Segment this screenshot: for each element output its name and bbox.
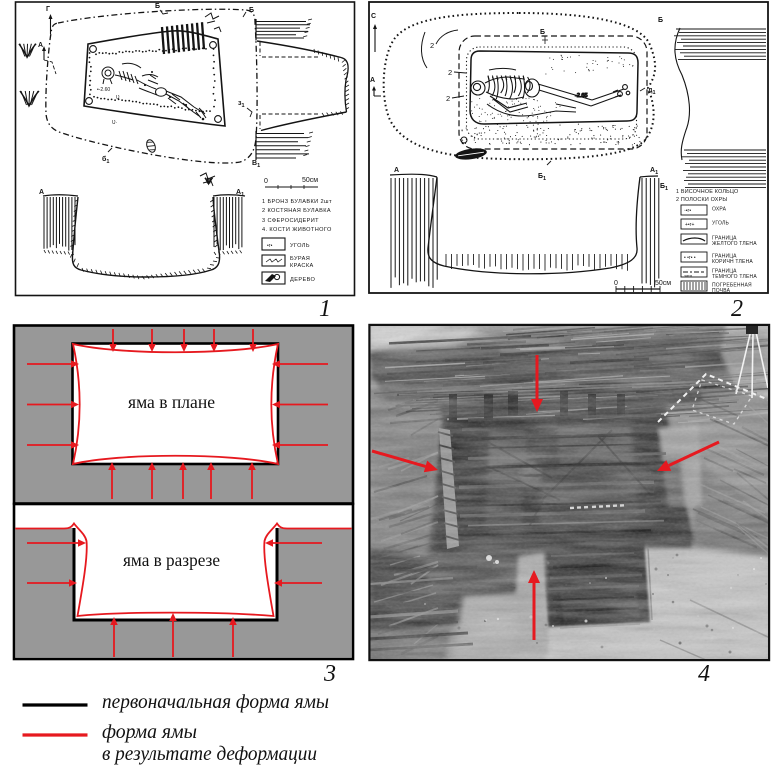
svg-text:КОРИЧН ТЛЕНА: КОРИЧН ТЛЕНА bbox=[712, 259, 753, 265]
svg-text:2: 2 bbox=[731, 296, 743, 322]
svg-text:0: 0 bbox=[614, 280, 618, 287]
svg-text:•-2.60: •-2.60 bbox=[97, 87, 110, 93]
svg-text:A: A bbox=[394, 167, 399, 174]
svg-text:•г•: •г• bbox=[267, 243, 273, 249]
svg-text:3: 3 bbox=[323, 661, 336, 687]
svg-text:КРАСКА: КРАСКА bbox=[290, 263, 314, 269]
svg-text:4. КОСТИ ЖИВОТНОГО: 4. КОСТИ ЖИВОТНОГО bbox=[262, 227, 332, 233]
svg-text:Ʋ·: Ʋ· bbox=[112, 120, 118, 126]
svg-text:1 БРОНЗ БУЛАВКИ 2шт: 1 БРОНЗ БУЛАВКИ 2шт bbox=[262, 199, 332, 205]
svg-text:яма в разрезе: яма в разрезе bbox=[123, 550, 220, 570]
svg-text:Ʋ: Ʋ bbox=[116, 95, 120, 101]
svg-text:ТЕМНОГО ТЛЕНА: ТЕМНОГО ТЛЕНА bbox=[712, 274, 757, 280]
svg-text:Г: Г bbox=[46, 6, 50, 13]
svg-text:50см: 50см bbox=[655, 280, 671, 287]
svg-text:ПОЧВА: ПОЧВА bbox=[712, 288, 731, 294]
svg-text:1: 1 bbox=[319, 296, 331, 322]
svg-text:ЖЕЛТОГО ТЛЕНА: ЖЕЛТОГО ТЛЕНА bbox=[712, 241, 757, 247]
svg-text:50см: 50см bbox=[302, 177, 318, 184]
svg-text:C: C bbox=[371, 13, 376, 20]
svg-text:◦•г•: ◦•г• bbox=[684, 208, 691, 214]
svg-text:форма ямы: форма ямы bbox=[102, 721, 197, 743]
svg-text:A: A bbox=[39, 189, 44, 196]
svg-text:1 ВИСОЧНОЕ КОЛЬЦО: 1 ВИСОЧНОЕ КОЛЬЦО bbox=[676, 189, 738, 195]
svg-text:Б: Б bbox=[249, 7, 254, 14]
svg-text:2 ПОЛОСКИ ОХРЫ: 2 ПОЛОСКИ ОХРЫ bbox=[676, 197, 727, 203]
svg-text:2 КОСТЯНАЯ БУЛАВКА: 2 КОСТЯНАЯ БУЛАВКА bbox=[262, 208, 331, 214]
svg-text:2: 2 bbox=[446, 94, 450, 103]
svg-text:+•г+: +•г+ bbox=[685, 222, 694, 228]
svg-text:первоначальная форма ямы: первоначальная форма ямы bbox=[102, 691, 329, 713]
svg-text:2: 2 bbox=[448, 68, 452, 77]
svg-text:A: A bbox=[370, 77, 375, 84]
svg-text:• •г• •: • •г• • bbox=[684, 255, 696, 261]
svg-text:ОХРА: ОХРА bbox=[712, 207, 727, 213]
svg-text:яма в плане: яма в плане bbox=[128, 392, 215, 412]
svg-text:4: 4 bbox=[698, 661, 710, 687]
svg-text:Б: Б bbox=[540, 29, 545, 36]
svg-text:ДЕРЕВО: ДЕРЕВО bbox=[290, 277, 316, 283]
svg-text:в результате деформации: в результате деформации bbox=[102, 743, 317, 765]
svg-text:УГОЛЬ: УГОЛЬ bbox=[290, 243, 310, 249]
svg-text:затл: затл bbox=[684, 273, 693, 278]
svg-text:3 СФЕРОСИДЕРИТ: 3 СФЕРОСИДЕРИТ bbox=[262, 218, 319, 224]
svg-text:Б: Б bbox=[658, 17, 663, 24]
svg-text:УГОЛЬ: УГОЛЬ bbox=[712, 221, 730, 227]
svg-text:0: 0 bbox=[264, 178, 268, 185]
svg-text:БУРАЯ: БУРАЯ bbox=[290, 256, 310, 262]
svg-text:-2.65: -2.65 bbox=[575, 93, 588, 99]
svg-text:A: A bbox=[38, 42, 43, 49]
svg-text:2: 2 bbox=[430, 41, 434, 50]
svg-text:Б: Б bbox=[155, 3, 160, 10]
